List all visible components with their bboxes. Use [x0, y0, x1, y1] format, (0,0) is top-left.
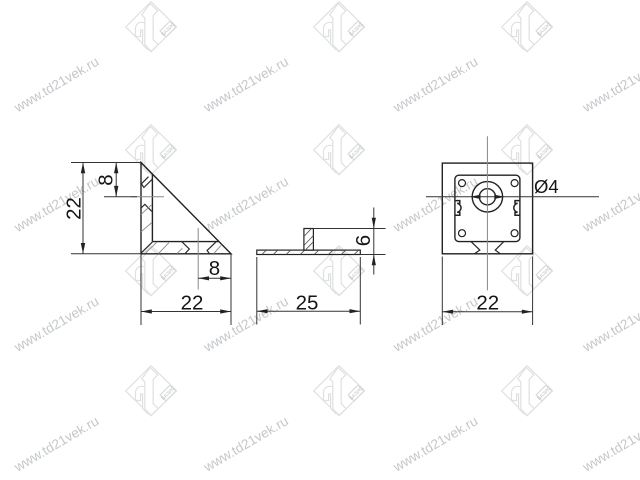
svg-text:Ø4: Ø4	[534, 176, 559, 197]
svg-text:6: 6	[352, 235, 375, 246]
svg-text:25: 25	[296, 292, 319, 315]
svg-text:8: 8	[95, 174, 118, 185]
svg-text:22: 22	[63, 197, 86, 220]
svg-text:22: 22	[476, 291, 499, 314]
svg-text:8: 8	[209, 257, 220, 280]
svg-text:22: 22	[181, 292, 204, 315]
